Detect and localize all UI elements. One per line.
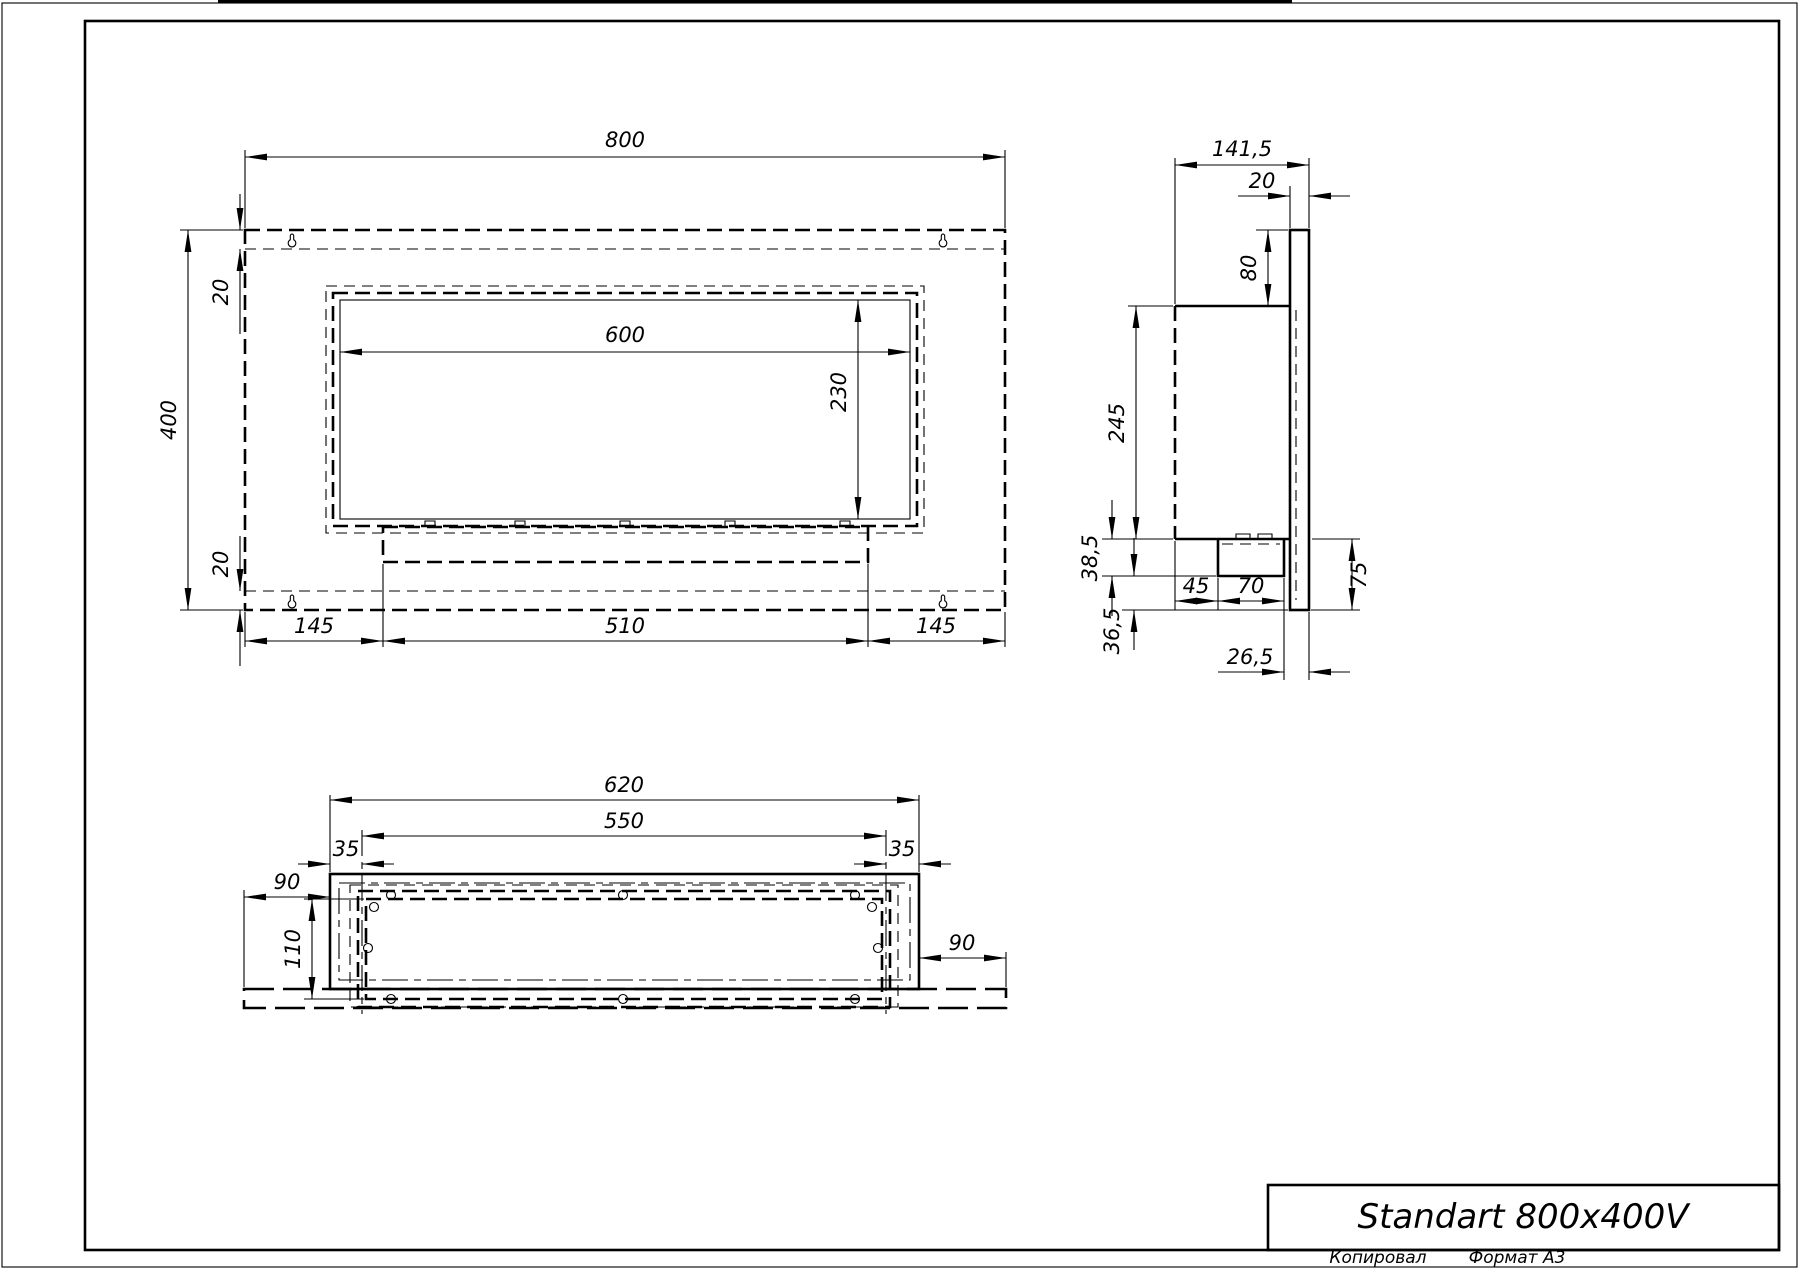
dim-bottom-left: 145 bbox=[294, 614, 334, 638]
dim-side-lower-height: 38,5 bbox=[1078, 535, 1102, 582]
keyhole-icon bbox=[939, 234, 947, 247]
dim-opening-height: 230 bbox=[827, 372, 851, 412]
keyhole-icon bbox=[288, 234, 296, 247]
dim-bottom-inset-left: 35 bbox=[333, 837, 360, 861]
copied-by-label: Копировал bbox=[1329, 1248, 1426, 1268]
dim-front-height: 400 bbox=[157, 400, 181, 440]
screw-holes bbox=[364, 891, 883, 1004]
dim-side-burner-width: 70 bbox=[1238, 574, 1265, 598]
dim-bottom-flange-left: 90 bbox=[274, 870, 301, 894]
format-label: Формат А3 bbox=[1469, 1248, 1566, 1268]
dim-side-bottom-gap: 36,5 bbox=[1100, 608, 1124, 655]
dim-bottom-opening-depth: 110 bbox=[281, 929, 305, 969]
outer-border bbox=[2, 3, 1797, 1267]
bottom-view: 620 550 35 35 90 90 110 bbox=[244, 773, 1006, 1014]
title-block: Standart 800x400V Копировал Формат А3 bbox=[1268, 1185, 1779, 1268]
front-panel-outline bbox=[245, 230, 1005, 610]
dim-front-width: 800 bbox=[605, 128, 645, 152]
dim-bottom-center: 510 bbox=[605, 614, 645, 638]
dim-bottom-right: 145 bbox=[916, 614, 956, 638]
drawing-title: Standart 800x400V bbox=[1357, 1197, 1691, 1237]
bottom-inner-wall-hidden bbox=[339, 883, 910, 980]
side-panel-plate bbox=[1290, 230, 1309, 610]
dim-side-rear-offset: 26,5 bbox=[1227, 645, 1274, 669]
dim-side-depth: 141,5 bbox=[1212, 137, 1272, 161]
front-dimension-lines bbox=[188, 157, 1005, 666]
dim-side-top-offset: 80 bbox=[1237, 255, 1261, 282]
dim-front-bottom-inset: 20 bbox=[209, 551, 233, 578]
dim-side-burner-offset: 45 bbox=[1183, 574, 1210, 598]
side-dimension-lines bbox=[1112, 165, 1352, 672]
dim-opening-width: 600 bbox=[605, 323, 645, 347]
dim-side-front-drop: 75 bbox=[1347, 562, 1371, 589]
dim-front-top-inset: 20 bbox=[209, 279, 233, 306]
dim-side-body-height: 245 bbox=[1105, 403, 1129, 443]
side-view: 141,5 20 80 245 38,5 36,5 45 70 26,5 75 bbox=[1078, 137, 1371, 680]
dim-bottom-body-width: 620 bbox=[604, 773, 644, 797]
front-extension-lines bbox=[180, 150, 1005, 647]
dim-bottom-inset-right: 35 bbox=[889, 837, 916, 861]
dim-bottom-opening-width: 550 bbox=[604, 809, 644, 833]
drawing-sheet: 800 400 20 20 600 230 145 510 145 bbox=[0, 0, 1800, 1273]
front-view: 800 400 20 20 600 230 145 510 145 bbox=[157, 128, 1005, 666]
sheet-frame bbox=[2, 0, 1797, 1267]
dim-bottom-flange-right: 90 bbox=[949, 931, 976, 955]
keyhole-icon bbox=[288, 595, 296, 608]
front-burner-hidden bbox=[383, 527, 868, 562]
bottom-opening-hidden-inner bbox=[366, 899, 882, 999]
keyhole-icon bbox=[939, 595, 947, 608]
dim-side-panel-thickness: 20 bbox=[1249, 169, 1276, 193]
drawing-canvas: 800 400 20 20 600 230 145 510 145 bbox=[0, 0, 1800, 1273]
